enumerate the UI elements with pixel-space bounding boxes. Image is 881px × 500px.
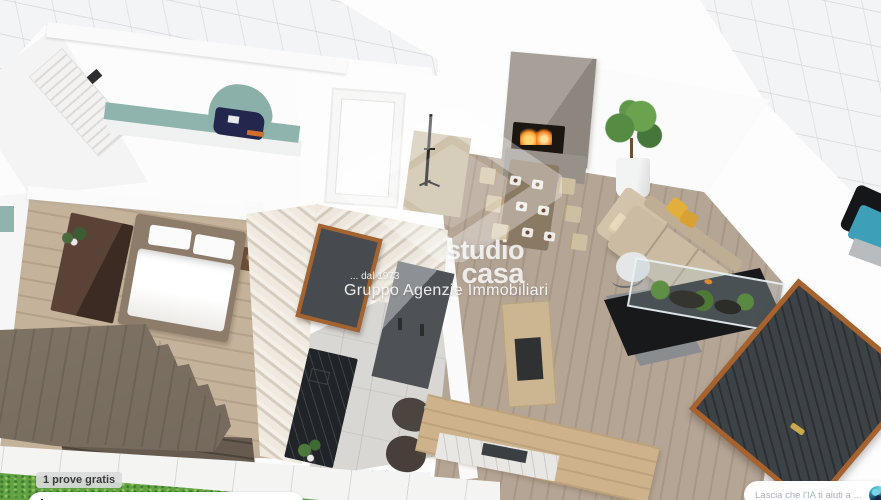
place-setting [537,205,549,215]
place-setting [515,201,527,211]
dresser-plant[interactable] [58,226,90,246]
dining-chair[interactable] [491,223,510,241]
desk-extension[interactable] [0,206,14,232]
console-inset [515,337,544,381]
place-setting [521,227,533,237]
place-setting [531,179,543,189]
white-door[interactable] [324,88,406,209]
place-setting [509,175,521,185]
3d-floorplan-viewport[interactable]: studio casa ... dal 1973 Gruppo Agenzie … [0,0,881,500]
shower-fixture [398,318,402,330]
laptop[interactable] [228,115,240,123]
tools-pill[interactable] [28,492,304,500]
wall-panel [403,130,472,217]
fire-flame [536,126,552,145]
free-trial-badge[interactable]: 1 prove gratis [36,472,122,488]
place-setting [543,231,555,241]
ai-pill-label: Lascia che l'IA ti aiuti a ... [755,490,863,500]
coat-rack-hook [424,148,435,150]
dining-chair[interactable] [485,195,504,213]
shower-fixture [420,324,424,336]
double-bed[interactable] [117,213,247,343]
dining-chair[interactable] [569,233,588,251]
dining-chair[interactable] [479,167,498,185]
dining-chair[interactable] [563,205,582,223]
vanity-plant[interactable] [294,436,324,462]
ai-assistant-pill[interactable]: Lascia che l'IA ti aiuti a ... [744,481,881,500]
goldfish [704,279,713,285]
ai-assistant-icon [869,486,881,500]
dining-chair[interactable] [557,177,576,195]
potted-tree[interactable] [600,96,666,154]
